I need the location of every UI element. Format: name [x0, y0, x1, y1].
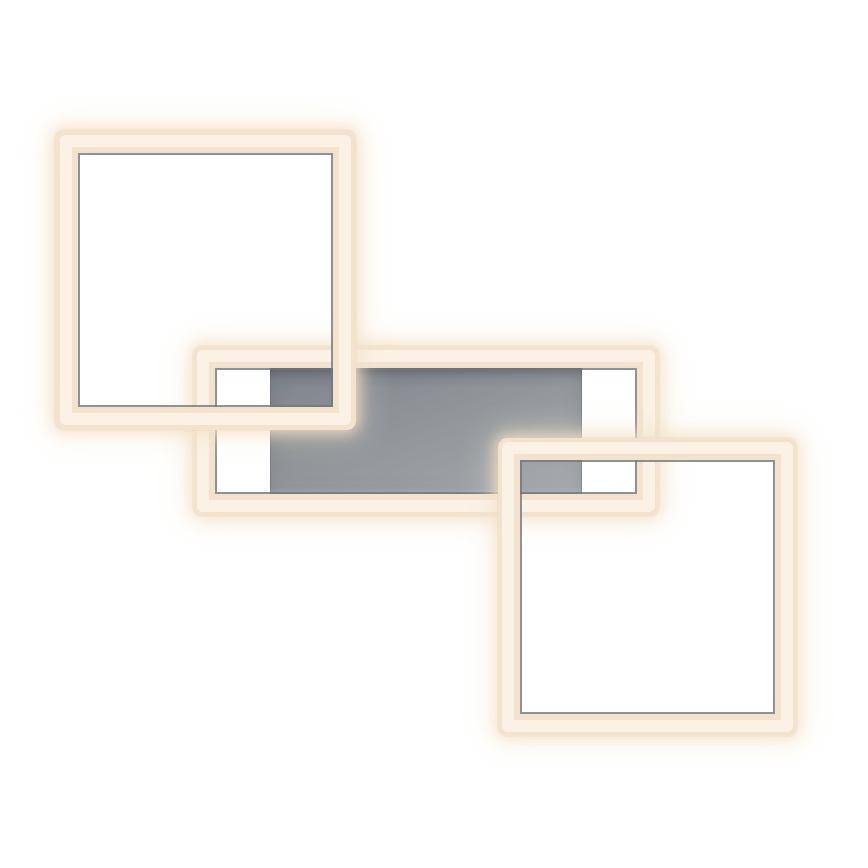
- led-frame-square-top-left: [55, 130, 356, 430]
- led-frame-square-bottom-right: [498, 438, 797, 736]
- product-photo: [0, 0, 868, 868]
